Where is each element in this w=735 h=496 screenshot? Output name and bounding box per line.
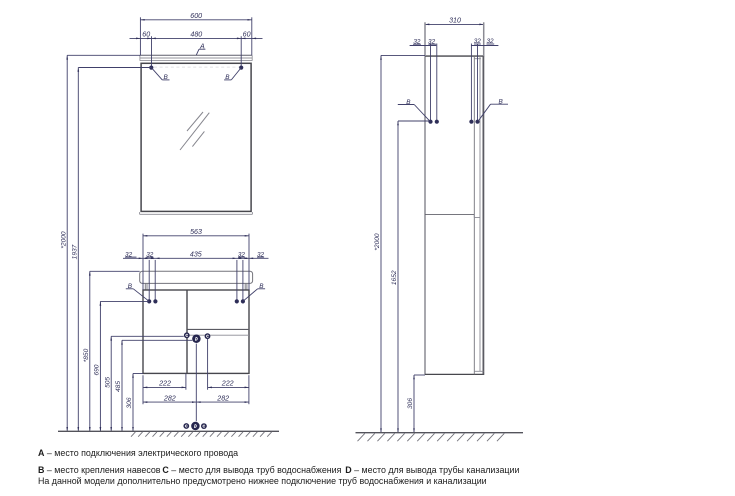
svg-text:1937: 1937 (72, 244, 79, 259)
svg-text:*850: *850 (83, 348, 90, 362)
svg-text:B: B (225, 74, 230, 81)
svg-text:435: 435 (190, 250, 202, 258)
svg-text:505: 505 (104, 377, 111, 388)
svg-text:222: 222 (221, 380, 234, 388)
svg-text:222: 222 (158, 380, 171, 388)
svg-text:306: 306 (407, 398, 414, 409)
svg-text:60: 60 (243, 31, 251, 39)
svg-text:1652: 1652 (391, 270, 398, 285)
svg-text:563: 563 (190, 228, 202, 236)
svg-text:306: 306 (126, 397, 133, 408)
svg-text:480: 480 (190, 31, 202, 39)
svg-text:60: 60 (142, 31, 150, 39)
svg-text:*2000: *2000 (374, 233, 381, 251)
svg-text:282: 282 (216, 394, 229, 402)
svg-text:282: 282 (163, 394, 176, 402)
svg-text:690: 690 (94, 364, 101, 375)
svg-text:B: B (163, 74, 168, 81)
svg-text:485: 485 (115, 381, 122, 392)
svg-text:600: 600 (190, 12, 202, 20)
svg-text:310: 310 (449, 17, 461, 25)
svg-text:*2000: *2000 (60, 231, 67, 249)
